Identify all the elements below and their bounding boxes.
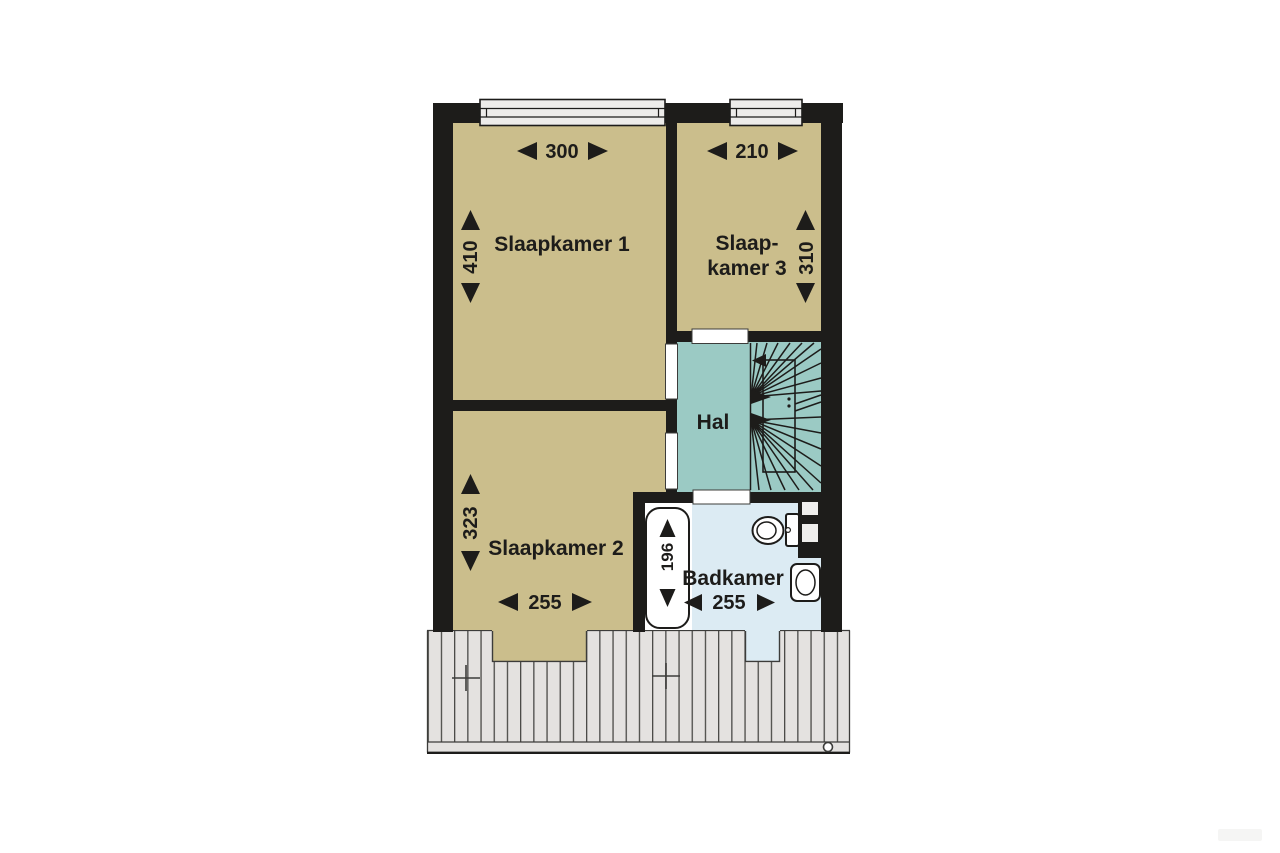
room-slaapkamer-1 [453,123,666,400]
door-slaapkamer-3 [692,329,748,344]
dim-slaapkamer-2-depth: 323 [460,506,482,539]
door-slaapkamer-1 [666,344,678,399]
wall-sk3-bottom-left [677,331,692,342]
wall-right [821,103,842,632]
room-label-slaapkamer-2: Slaapkamer 2 [488,537,623,560]
roof [427,630,850,753]
wall-left [433,103,453,632]
window-slaapkamer-1 [480,100,665,126]
door-slaapkamer-2 [666,433,678,489]
dim-slaapkamer-1-width: 300 [545,141,578,163]
windows [480,100,802,126]
wall-sk1-sk2 [453,400,666,411]
room-label-badkamer: Badkamer [682,567,784,590]
room-label-hal: Hal [697,411,730,434]
dim-slaapkamer-2-width: 255 [528,592,561,614]
floorplan-canvas: 300 410 210 310 323 255 255 196 Slaapkam… [0,0,1280,853]
sink-icon [791,564,820,601]
wall-sk3-bottom-right [748,331,821,342]
toilet-icon [753,514,800,546]
dim-slaapkamer-3-depth: 310 [796,241,818,274]
dim-badkamer-width: 255 [712,592,745,614]
room-label-slaapkamer-1: Slaapkamer 1 [494,233,630,256]
room-label-slaapkamer-3-line1: Slaap- [715,232,778,255]
room-label-slaapkamer-3-line2: kamer 3 [707,257,786,280]
duct-notch [802,524,818,542]
stair-break-dot [787,397,790,400]
roof-eaves-band [427,742,850,753]
watermark [1218,829,1262,841]
duct-notch [802,502,818,515]
roof-striped-band [427,630,850,742]
door-badkamer [693,490,750,504]
floorplan-page: 300 410 210 310 323 255 255 196 Slaapkam… [0,0,1280,853]
roof-drain-circle-icon [824,743,833,752]
dim-slaapkamer-3-width: 210 [735,141,768,163]
dim-slaapkamer-1-depth: 410 [460,240,482,273]
wall-sk2-badkamer [633,492,645,632]
dim-bathtub-length: 196 [658,543,677,571]
wall-center-upper [666,123,677,344]
window-slaapkamer-3 [730,100,802,126]
wall-center-mid [666,399,677,433]
stair-break-dot [787,404,790,407]
